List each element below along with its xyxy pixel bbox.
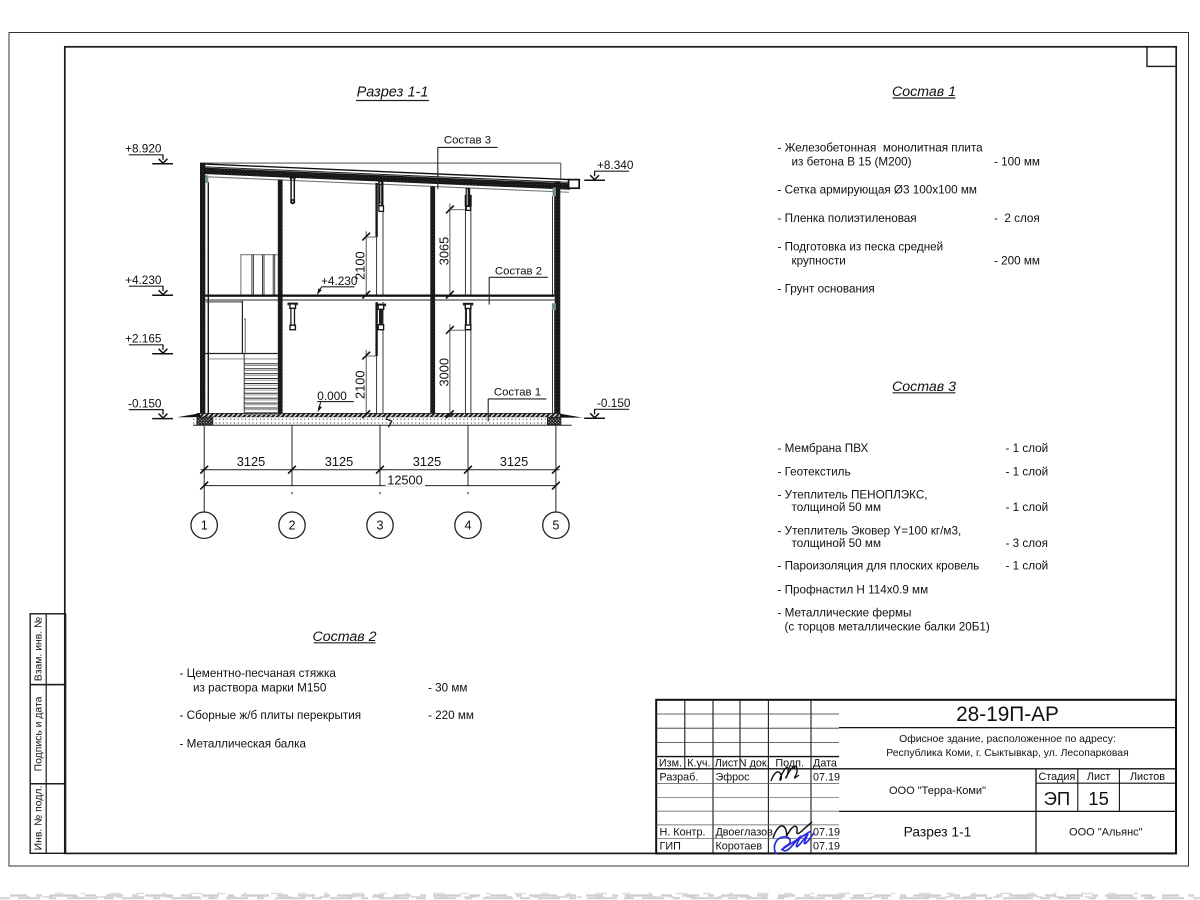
svg-text:+4.230: +4.230 [125,273,162,287]
svg-text:+2.165: +2.165 [125,332,162,346]
svg-text:- Геотекстиль: - Геотекстиль [778,466,851,479]
svg-text:-0.150: -0.150 [597,396,631,410]
svg-text:+8.920: +8.920 [125,142,162,156]
svg-text:Лист: Лист [1087,771,1111,783]
svg-text:крупности: крупности [792,255,846,268]
svg-text:- Профнастил Н 114х0.9 мм: - Профнастил Н 114х0.9 мм [778,583,929,596]
svg-text:3125: 3125 [413,454,441,469]
svg-text:толщиной 50 мм: толщиной 50 мм [792,537,881,550]
svg-text:- 200 мм: - 200 мм [994,255,1040,268]
svg-text:- Цементно-песчаная стяжка: - Цементно-песчаная стяжка [180,667,337,680]
svg-text:ООО "Альянс": ООО "Альянс" [1069,826,1143,838]
svg-text:Подп.: Подп. [775,758,804,770]
svg-text:3125: 3125 [237,454,265,469]
svg-text:- 1 слой: - 1 слой [1006,560,1049,573]
svg-text:Н. Контр.: Н. Контр. [660,827,706,839]
svg-text:2: 2 [288,519,295,533]
svg-text:Дата: Дата [813,758,837,770]
svg-text:- 220 мм: - 220 мм [428,709,474,722]
svg-text:Состав 2: Состав 2 [495,266,542,278]
svg-text:из раствора марки М150: из раствора марки М150 [193,682,327,695]
svg-text:Листов: Листов [1130,771,1165,783]
svg-text:- 3 слоя: - 3 слоя [1006,537,1049,550]
svg-text:+8.340: +8.340 [597,158,634,172]
svg-text:3125: 3125 [500,454,528,469]
svg-text:07.19: 07.19 [813,772,840,784]
svg-text:Взам. инв. №: Взам. инв. № [34,617,45,681]
svg-text:3125: 3125 [325,454,353,469]
svg-text:5: 5 [552,519,559,533]
svg-text:4: 4 [464,519,471,533]
svg-text:Изм.: Изм. [659,758,682,770]
svg-text:- 1 слой: - 1 слой [1006,442,1049,455]
svg-text:28-19П-АР: 28-19П-АР [956,703,1059,726]
svg-text:Стадия: Стадия [1038,771,1075,783]
svg-text:- Сетка армирующая Ø3 100х100: - Сетка армирующая Ø3 100х100 мм [778,184,977,197]
svg-text:Коротаев: Коротаев [716,840,763,852]
svg-text:Инв. № подл.: Инв. № подл. [34,786,45,851]
svg-text:12500: 12500 [387,473,423,488]
svg-text:3000: 3000 [436,358,451,386]
svg-text:Лист: Лист [715,758,739,770]
svg-text:-0.150: -0.150 [128,396,162,410]
svg-text:- Мембрана ПВХ: - Мембрана ПВХ [778,442,869,455]
svg-text:- Пароизоляция для плоских кро: - Пароизоляция для плоских кровель [778,560,980,573]
svg-text:из бетона В 15 (М200): из бетона В 15 (М200) [792,156,912,169]
svg-text:- Утеплитель ПЕНОПЛЭКС,: - Утеплитель ПЕНОПЛЭКС, [778,489,928,502]
svg-text:1: 1 [201,519,208,533]
svg-text:2100: 2100 [353,371,368,399]
svg-text:07.19: 07.19 [813,827,840,839]
svg-text:Двоеглазов: Двоеглазов [716,827,774,839]
svg-text:2100: 2100 [353,251,368,279]
svg-text:Состав 3: Состав 3 [444,135,491,147]
svg-text:- Металлические фермы: - Металлические фермы [778,607,912,620]
svg-text:Республика Коми, г. Сыктывкар,: Республика Коми, г. Сыктывкар, ул. Лесоп… [886,747,1128,759]
svg-text:- Подготовка из песка средней: - Подготовка из песка средней [778,241,944,254]
svg-text:- Металлическая балка: - Металлическая балка [180,738,307,751]
svg-text:07.19: 07.19 [813,840,840,852]
svg-text:Разраб.: Разраб. [660,772,699,784]
svg-text:- 2 слоя: - 2 слоя [994,212,1040,225]
svg-text:- Утеплитель Эковер Y=100 кг/м: - Утеплитель Эковер Y=100 кг/м3, [778,525,962,538]
svg-text:3065: 3065 [436,237,451,265]
svg-text:- 30 мм: - 30 мм [428,682,467,695]
svg-text:(с торцов металлические балки: (с торцов металлические балки 20Б1) [785,621,990,634]
svg-text:Эфрос: Эфрос [716,772,751,784]
svg-text:- 100 мм: - 100 мм [994,156,1040,169]
svg-text:ГИП: ГИП [660,840,681,852]
svg-text:Офисное здание, расположенное: Офисное здание, расположенное по адресу: [899,733,1116,745]
svg-text:- Грунт основания: - Грунт основания [778,283,875,296]
svg-text:15: 15 [1088,788,1109,809]
svg-text:ЭП: ЭП [1044,788,1071,809]
svg-text:Разрез 1-1: Разрез 1-1 [357,85,429,101]
svg-text:ООО "Терра-Коми": ООО "Терра-Коми" [889,785,986,797]
svg-text:- 1 слой: - 1 слой [1006,501,1049,514]
svg-text:Разрез 1-1: Разрез 1-1 [904,825,972,840]
svg-text:толщиной 50 мм: толщиной 50 мм [792,501,881,514]
svg-text:N док.: N док. [739,758,770,770]
svg-text:- 1 слой: - 1 слой [1006,466,1049,479]
svg-text:3: 3 [376,519,383,533]
svg-text:К.уч.: К.уч. [687,758,710,770]
svg-text:0.000: 0.000 [317,389,347,403]
svg-text:Подпись и дата: Подпись и дата [34,696,45,771]
svg-text:Состав 1: Состав 1 [494,386,541,398]
svg-text:- Пленка полиэтиленовая: - Пленка полиэтиленовая [778,212,917,225]
svg-text:- Железобетонная монолитная п: - Железобетонная монолитная плита [778,142,984,155]
svg-text:- Сборные ж/б плиты перекрытия: - Сборные ж/б плиты перекрытия [180,709,362,722]
